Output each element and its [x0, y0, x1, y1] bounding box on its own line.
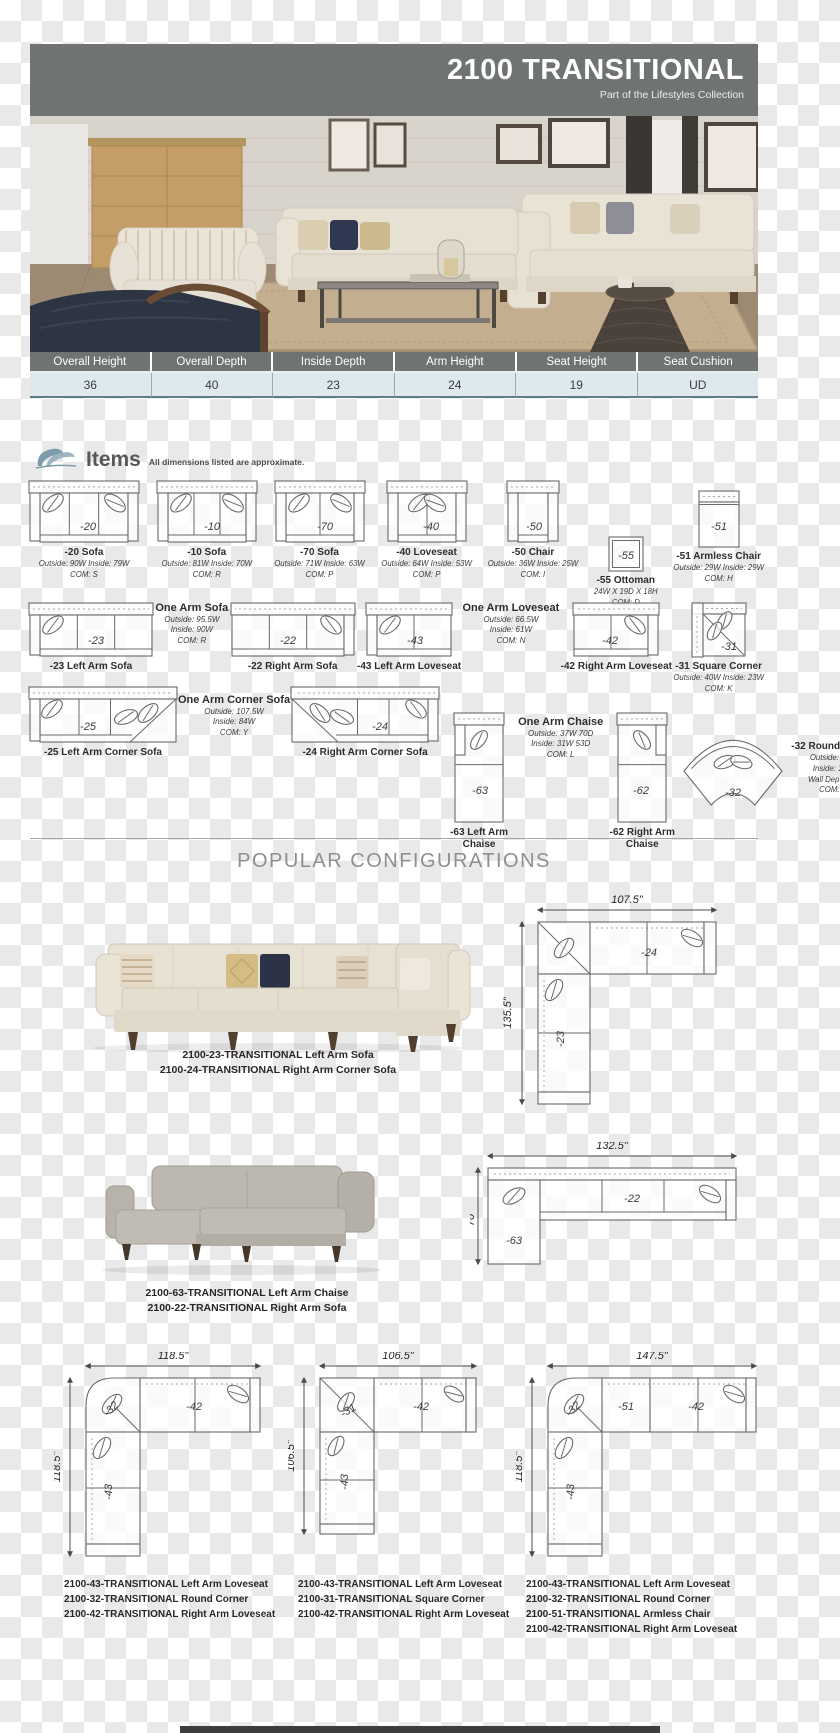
item-spec: Outside: 90W Inside: 79W — [39, 559, 130, 570]
spec-block-line: Inside: 61W — [490, 625, 532, 636]
caption-line: 2100-43-TRANSITIONAL Left Arm Loveseat — [298, 1577, 509, 1592]
item-spec-block: One Arm SofaOutside: 95.5WInside: 90WCOM… — [155, 602, 228, 647]
spec-block-line: COM: Y — [220, 728, 248, 739]
spec-block-title: One Arm Chaise — [518, 716, 603, 729]
config3a-caption: 2100-43-TRANSITIONAL Left Arm Loveseat 2… — [54, 1577, 276, 1622]
spec-col-value: 40 — [152, 373, 274, 398]
config1-caption-line: 2100-23-TRANSITIONAL Left Arm Sofa — [78, 1048, 478, 1063]
config3c-caption: 2100-43-TRANSITIONAL Left Arm Loveseat 2… — [516, 1577, 768, 1637]
svg-text:-23: -23 — [88, 635, 105, 647]
item-name: -40 Loveseat — [396, 547, 457, 559]
spec-block-line: Inside: 90W — [171, 625, 213, 636]
items-section-header: Items All dimensions listed are approxim… — [34, 444, 304, 470]
caption-line: 2100-42-TRANSITIONAL Right Arm Loveseat — [64, 1607, 276, 1622]
item-name: -42 Right Arm Loveseat — [561, 661, 672, 673]
round-corner-top-view-icon: -32 — [681, 726, 785, 808]
spec-col-header: Arm Height — [395, 352, 517, 373]
page-subtitle: Part of the Lifestyles Collection — [30, 89, 744, 101]
spec-block-line: Outside: 95.5W — [164, 615, 219, 626]
item-card: -23-23 Left Arm Sofa — [28, 600, 154, 673]
spec-col-value: UD — [638, 373, 759, 398]
item-card: -55-55 Ottoman24W X 19D X 18HCOM: D — [594, 506, 658, 608]
config1-label-h: -24 — [641, 947, 657, 959]
items-row-1: -20-20 SofaOutside: 90W Inside: 79WCOM: … — [28, 478, 764, 608]
sectional-sofa-photo-illustration — [78, 914, 478, 1054]
svg-text:-40: -40 — [423, 521, 440, 533]
item-name: -63 Left Arm Chaise — [440, 827, 518, 851]
one-arm-right-loveseat-top-view-icon: -42 — [572, 602, 660, 658]
loveseat-top-view-icon: -40 — [386, 480, 468, 544]
item-spec: Outside: 71W Inside: 63W — [274, 559, 365, 570]
caption-line: 2100-43-TRANSITIONAL Left Arm Loveseat — [64, 1577, 276, 1592]
corner-sofa-right-top-view-icon: -24 — [290, 686, 440, 744]
configuration-row-3: 118.5" 118.5" -32 -42 -43 — [30, 1352, 758, 1652]
armless-chair-top-view-icon: -51 — [698, 490, 740, 548]
configuration-3a: 118.5" 118.5" -32 -42 -43 — [54, 1352, 276, 1622]
item-spec: COM: P — [306, 570, 334, 581]
config3c-dimension-diagram: 147.5" 118.5" -32 -51 -42 — [516, 1352, 768, 1566]
config3a-top-dimension: 118.5" — [158, 1352, 190, 1362]
item-name: -70 Sofa — [300, 547, 339, 559]
config2-caption-line: 2100-22-TRANSITIONAL Right Arm Sofa — [92, 1301, 402, 1316]
item-spec: COM: S — [70, 570, 98, 581]
svg-text:-51: -51 — [711, 521, 727, 533]
config3c-label-v: -43 — [565, 1483, 577, 1500]
items-row-2: -23-23 Left Arm SofaOne Arm SofaOutside:… — [28, 600, 764, 694]
spec-table-header-row: Overall HeightOverall DepthInside DepthA… — [30, 352, 758, 373]
item-name: -55 Ottoman — [597, 575, 655, 587]
configuration-3b: 106.5" 106.5" -31 -42 -43 — [288, 1352, 509, 1622]
config1-top-dimension: 107.5" — [611, 894, 644, 906]
item-name: -43 Left Arm Loveseat — [357, 661, 461, 673]
config3a-label-h: -42 — [186, 1401, 202, 1413]
svg-text:-50: -50 — [526, 521, 543, 533]
item-card: -20-20 SofaOutside: 90W Inside: 79WCOM: … — [28, 478, 140, 580]
bottom-crop-strip — [180, 1726, 660, 1733]
items-title: Items — [86, 449, 141, 470]
item-spec: COM: O — [791, 785, 840, 796]
section-divider — [30, 838, 758, 839]
spec-block-line: Outside: 66.5W — [483, 615, 538, 626]
item-spec: COM: P — [413, 570, 441, 581]
leaf-logo-icon — [34, 444, 78, 470]
item-card: -43-43 Left Arm Loveseat — [357, 600, 461, 673]
svg-text:-43: -43 — [407, 635, 424, 647]
item-name: -24 Right Arm Corner Sofa — [302, 747, 427, 759]
spec-table-value-row: 3640232419UD — [30, 373, 758, 398]
chaise-right-top-view-icon: -62 — [616, 712, 668, 824]
config3b-dimension-diagram: 106.5" 106.5" -31 -42 -43 — [288, 1352, 494, 1566]
spec-table: Overall HeightOverall DepthInside DepthA… — [30, 352, 758, 398]
spec-col-value: 36 — [30, 373, 152, 398]
config3a-side-dimension: 118.5" — [54, 1451, 63, 1483]
caption-line: 2100-43-TRANSITIONAL Left Arm Loveseat — [526, 1577, 768, 1592]
item-spec-block: One Arm LoveseatOutside: 66.5WInside: 61… — [463, 602, 560, 647]
svg-text:-22: -22 — [280, 635, 296, 647]
config2-dimension-diagram: 132.5" 70" -63 -22 — [470, 1142, 760, 1274]
configuration-2: 2100-63-TRANSITIONAL Left Arm Chaise 210… — [30, 1138, 758, 1338]
config1-label-v: -23 — [555, 1030, 567, 1047]
item-name: -25 Left Arm Corner Sofa — [44, 747, 162, 759]
config3c-top-dimension: 147.5" — [636, 1352, 669, 1362]
config3b-side-dimension: 106.5" — [288, 1439, 297, 1472]
page-title: 2100 TRANSITIONAL — [30, 56, 744, 85]
item-card: -70-70 SofaOutside: 71W Inside: 63WCOM: … — [274, 478, 366, 580]
spec-col-header: Overall Depth — [152, 352, 274, 373]
item-name: -20 Sofa — [65, 547, 104, 559]
configuration-3c: 147.5" 118.5" -32 -51 -42 — [516, 1352, 768, 1637]
svg-text:-42: -42 — [602, 635, 618, 647]
item-spec: Outside: 81W Inside: 70W — [161, 559, 252, 570]
caption-line: 2100-42-TRANSITIONAL Right Arm Loveseat — [526, 1622, 768, 1637]
caption-line: 2100-31-TRANSITIONAL Square Corner — [298, 1592, 509, 1607]
lifestyle-photo — [30, 116, 758, 352]
item-card: -22-22 Right Arm Sofa — [230, 600, 356, 673]
corner-sofa-left-top-view-icon: -25 — [28, 686, 178, 744]
item-spec: Outside: 64W Inside: 53W — [381, 559, 472, 570]
config2-side-dimension: 70" — [470, 1209, 477, 1226]
item-card: -63-63 Left Arm Chaise — [440, 712, 518, 851]
spec-col-header: Inside Depth — [273, 352, 395, 373]
item-name: -10 Sofa — [187, 547, 226, 559]
config2-photo — [92, 1152, 402, 1283]
config3c-label-mid: -51 — [618, 1401, 634, 1413]
items-row-3: -25-25 Left Arm Corner SofaOne Arm Corne… — [28, 686, 764, 851]
caption-line: 2100-42-TRANSITIONAL Right Arm Loveseat — [298, 1607, 509, 1622]
living-room-photo-illustration — [30, 116, 758, 352]
item-spec: Wall Depth: 52 — [791, 775, 840, 786]
config3b-top-dimension: 106.5" — [382, 1352, 415, 1362]
config3b-label-h: -42 — [413, 1401, 429, 1413]
spec-block-title: One Arm Sofa — [155, 602, 228, 615]
spec-block-line: Outside: 37W 70D — [528, 729, 593, 740]
item-name: -62 Right Arm Chaise — [603, 827, 681, 851]
spec-block-title: One Arm Loveseat — [463, 602, 560, 615]
item-card: -40-40 LoveseatOutside: 64W Inside: 53WC… — [381, 478, 472, 580]
config3b-label-v: -43 — [339, 1473, 351, 1490]
config3c-side-dimension: 118.5" — [516, 1451, 525, 1483]
square-corner-top-view-icon: -31 — [691, 602, 747, 658]
spec-block-title: One Arm Corner Sofa — [178, 694, 290, 707]
ottoman-top-view-icon: -55 — [608, 536, 644, 572]
item-spec: 24W X 19D X 18H — [594, 587, 658, 598]
item-card: -25-25 Left Arm Corner Sofa — [28, 686, 178, 759]
spec-col-header: Seat Cushion — [638, 352, 758, 373]
spec-block-line: COM: L — [547, 750, 575, 761]
one-arm-left-loveseat-top-view-icon: -43 — [365, 602, 453, 658]
spec-block-line: Inside: 84W — [213, 717, 255, 728]
sofa-top-view-icon: -20 — [28, 480, 140, 544]
item-name: -31 Square Corner — [675, 661, 762, 673]
spec-block-line: Outside: 107.5W — [204, 707, 264, 718]
item-card: -31-31 Square CornerOutside: 40W Inside:… — [673, 600, 764, 694]
spec-block-line: COM: R — [177, 636, 206, 647]
spec-block-line: Inside: 31W 53D — [531, 739, 590, 750]
spec-col-value: 24 — [395, 373, 517, 398]
caption-line: 2100-32-TRANSITIONAL Round Corner — [526, 1592, 768, 1607]
config2-top-dimension: 132.5" — [596, 1142, 629, 1152]
chaise-left-top-view-icon: -63 — [453, 712, 505, 824]
svg-text:-55: -55 — [618, 550, 635, 562]
one-arm-left-sofa-top-view-icon: -23 — [28, 602, 154, 658]
config1-caption-line: 2100-24-TRANSITIONAL Right Arm Corner So… — [78, 1063, 478, 1078]
svg-text:-24: -24 — [372, 721, 388, 733]
item-card: -51-51 Armless ChairOutside: 29W Inside:… — [673, 482, 764, 584]
config1-photo — [78, 914, 478, 1059]
config2-caption: 2100-63-TRANSITIONAL Left Arm Chaise 210… — [92, 1286, 402, 1316]
svg-text:-62: -62 — [633, 785, 649, 797]
svg-text:-32: -32 — [725, 787, 741, 799]
configuration-1: 2100-23-TRANSITIONAL Left Arm Sofa 2100-… — [30, 892, 758, 1130]
one-arm-right-sofa-top-view-icon: -22 — [230, 602, 356, 658]
chair-top-view-icon: -50 — [506, 480, 560, 544]
item-name: -32 Round Corner — [791, 741, 840, 753]
config3a-dimension-diagram: 118.5" 118.5" -32 -42 -43 — [54, 1352, 276, 1566]
svg-text:-63: -63 — [472, 785, 489, 797]
config1-side-dimension: 135.5" — [502, 996, 514, 1029]
caption-line: 2100-32-TRANSITIONAL Round Corner — [64, 1592, 276, 1607]
config3a-label-v: -43 — [103, 1483, 115, 1500]
spec-sheet-page: 2100 TRANSITIONAL Part of the Lifestyles… — [0, 0, 840, 1733]
svg-text:-31: -31 — [721, 641, 737, 653]
caption-line: 2100-51-TRANSITIONAL Armless Chair — [526, 1607, 768, 1622]
spec-block-line: COM: N — [496, 636, 525, 647]
popular-configurations-title: POPULAR CONFIGURATIONS — [30, 850, 758, 873]
item-spec: COM: R — [193, 570, 221, 581]
item-spec: Outside: 36W Inside: 25W — [488, 559, 579, 570]
item-card: -42-42 Right Arm Loveseat — [561, 600, 672, 673]
config3c-label-h: -42 — [688, 1401, 704, 1413]
config2-label-chaise: -63 — [506, 1235, 523, 1247]
item-card: -50-50 ChairOutside: 36W Inside: 25WCOM:… — [488, 478, 579, 580]
item-spec: COM: I — [521, 570, 546, 581]
item-name: -22 Right Arm Sofa — [248, 661, 338, 673]
sofa-top-view-icon: -70 — [274, 480, 366, 544]
config2-caption-line: 2100-63-TRANSITIONAL Left Arm Chaise — [92, 1286, 402, 1301]
chaise-sofa-photo-illustration — [92, 1152, 402, 1278]
svg-text:-10: -10 — [204, 521, 221, 533]
svg-text:-20: -20 — [80, 521, 97, 533]
config1-dimension-diagram: 107.5" 135.5" -24 -23 — [502, 894, 752, 1116]
item-name: -51 Armless Chair — [676, 551, 761, 563]
svg-text:-70: -70 — [317, 521, 334, 533]
config3b-caption: 2100-43-TRANSITIONAL Left Arm Loveseat 2… — [288, 1577, 509, 1622]
item-card: -10-10 SofaOutside: 81W Inside: 70WCOM: … — [156, 478, 258, 580]
spec-col-header: Overall Height — [30, 352, 152, 373]
item-spec: Outside: 29W Inside: 29W — [673, 563, 764, 574]
header-bar: 2100 TRANSITIONAL Part of the Lifestyles… — [30, 44, 758, 116]
config2-label-sofa: -22 — [624, 1193, 640, 1205]
spec-col-value: 19 — [516, 373, 638, 398]
item-spec: Inside: 16W — [791, 764, 840, 775]
item-name: -50 Chair — [511, 547, 554, 559]
spec-col-value: 23 — [273, 373, 395, 398]
item-spec-block: One Arm Corner SofaOutside: 107.5WInside… — [178, 694, 290, 739]
item-card: -24-24 Right Arm Corner Sofa — [290, 686, 440, 759]
items-note: All dimensions listed are approximate. — [149, 457, 304, 470]
item-card: -32-32 Round CornerOutside: 74WInside: 1… — [681, 726, 840, 808]
item-name: -23 Left Arm Sofa — [50, 661, 132, 673]
config1-caption: 2100-23-TRANSITIONAL Left Arm Sofa 2100-… — [78, 1048, 478, 1078]
item-spec: COM: H — [705, 574, 733, 585]
sofa-top-view-icon: -10 — [156, 480, 258, 544]
svg-text:-25: -25 — [80, 721, 97, 733]
spec-col-header: Seat Height — [517, 352, 639, 373]
item-spec: Outside: 74W — [791, 753, 840, 764]
item-card: -62-62 Right Arm Chaise — [603, 712, 681, 851]
item-spec: Outside: 40W Inside: 23W — [673, 673, 764, 684]
item-spec-block: One Arm ChaiseOutside: 37W 70DInside: 31… — [518, 716, 603, 761]
